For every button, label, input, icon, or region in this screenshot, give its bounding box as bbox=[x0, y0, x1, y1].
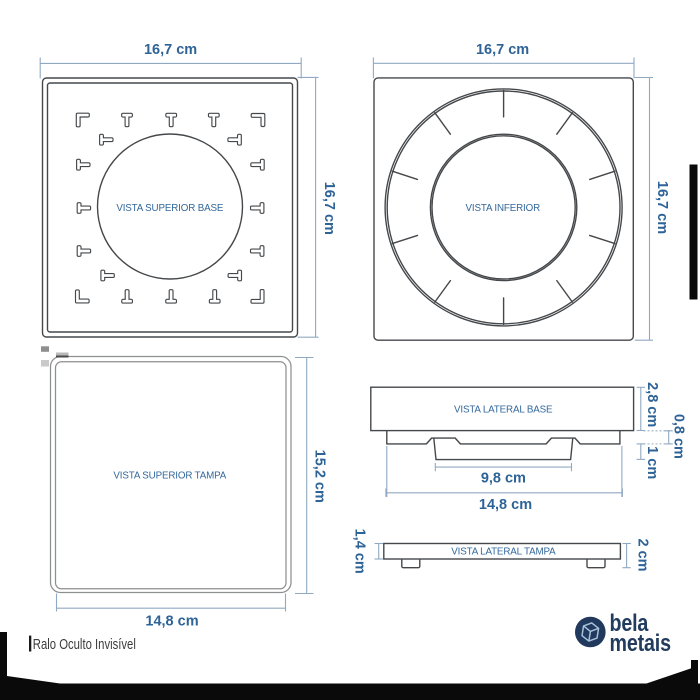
svg-text:15,2 cm: 15,2 cm bbox=[311, 450, 327, 503]
svg-text:14,8 cm: 14,8 cm bbox=[145, 614, 198, 630]
svg-text:VISTA LATERAL TAMPA: VISTA LATERAL TAMPA bbox=[451, 547, 556, 558]
svg-text:VISTA INFERIOR: VISTA INFERIOR bbox=[466, 203, 541, 214]
svg-text:16,7 cm: 16,7 cm bbox=[476, 42, 529, 58]
svg-text:VISTA SUPERIOR TAMPA: VISTA SUPERIOR TAMPA bbox=[113, 470, 226, 481]
svg-text:Ralo Oculto Invisível: Ralo Oculto Invisível bbox=[33, 635, 136, 652]
svg-text:14,8 cm: 14,8 cm bbox=[479, 497, 532, 513]
svg-text:1,4 cm: 1,4 cm bbox=[352, 529, 368, 574]
svg-text:VISTA SUPERIOR BASE: VISTA SUPERIOR BASE bbox=[116, 203, 224, 214]
svg-text:2,8 cm: 2,8 cm bbox=[644, 382, 660, 427]
svg-text:0,8 cm: 0,8 cm bbox=[670, 414, 686, 459]
svg-text:metais: metais bbox=[610, 629, 671, 656]
svg-text:16,7 cm: 16,7 cm bbox=[654, 181, 670, 234]
svg-text:2 cm: 2 cm bbox=[635, 538, 651, 571]
svg-text:16,7 cm: 16,7 cm bbox=[321, 182, 337, 235]
svg-text:VISTA LATERAL BASE: VISTA LATERAL BASE bbox=[454, 405, 553, 416]
svg-text:1 cm: 1 cm bbox=[644, 446, 660, 479]
svg-text:16,7 cm: 16,7 cm bbox=[144, 42, 197, 58]
svg-text:9,8 cm: 9,8 cm bbox=[481, 470, 526, 486]
